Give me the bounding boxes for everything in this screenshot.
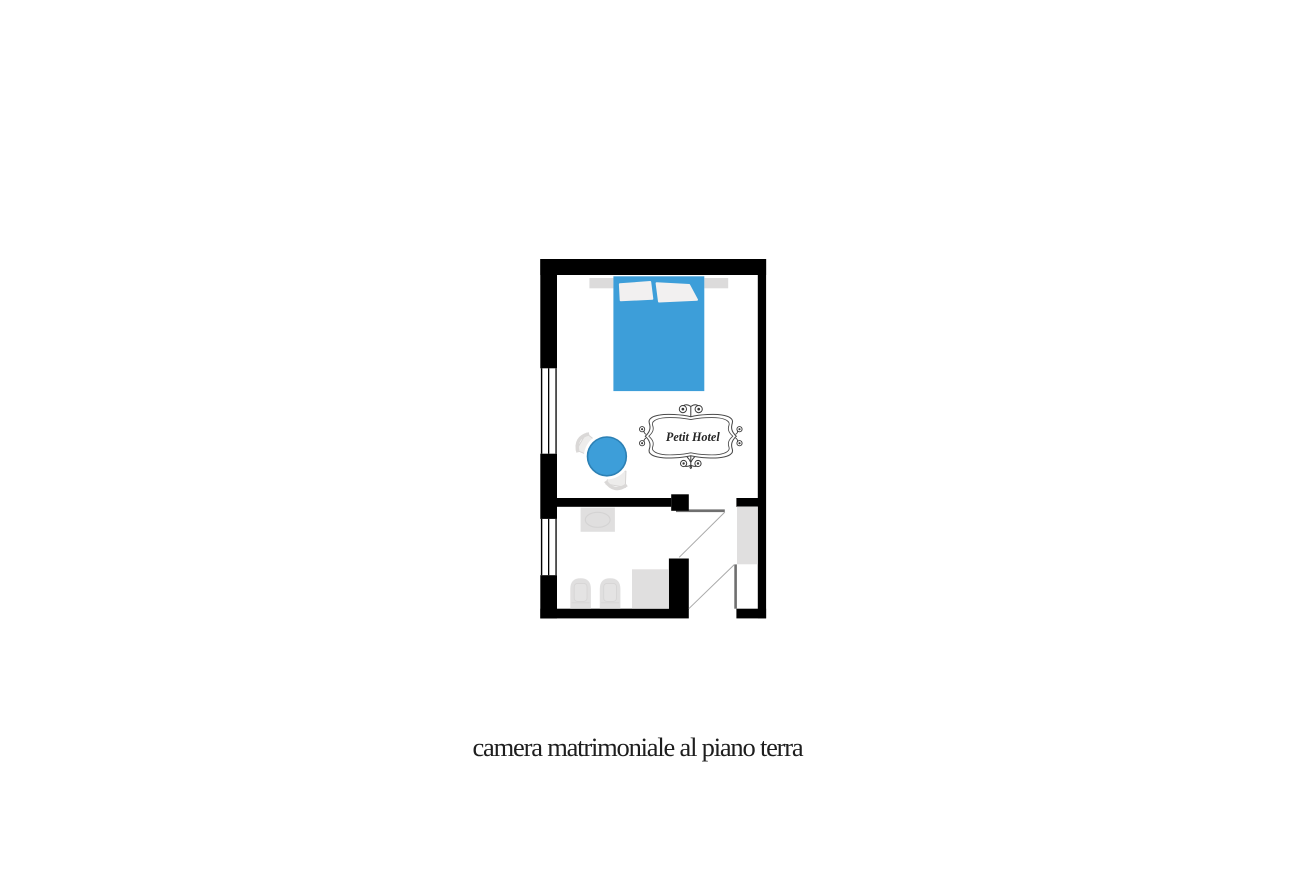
svg-text:Petit Hotel: Petit Hotel bbox=[666, 430, 720, 444]
